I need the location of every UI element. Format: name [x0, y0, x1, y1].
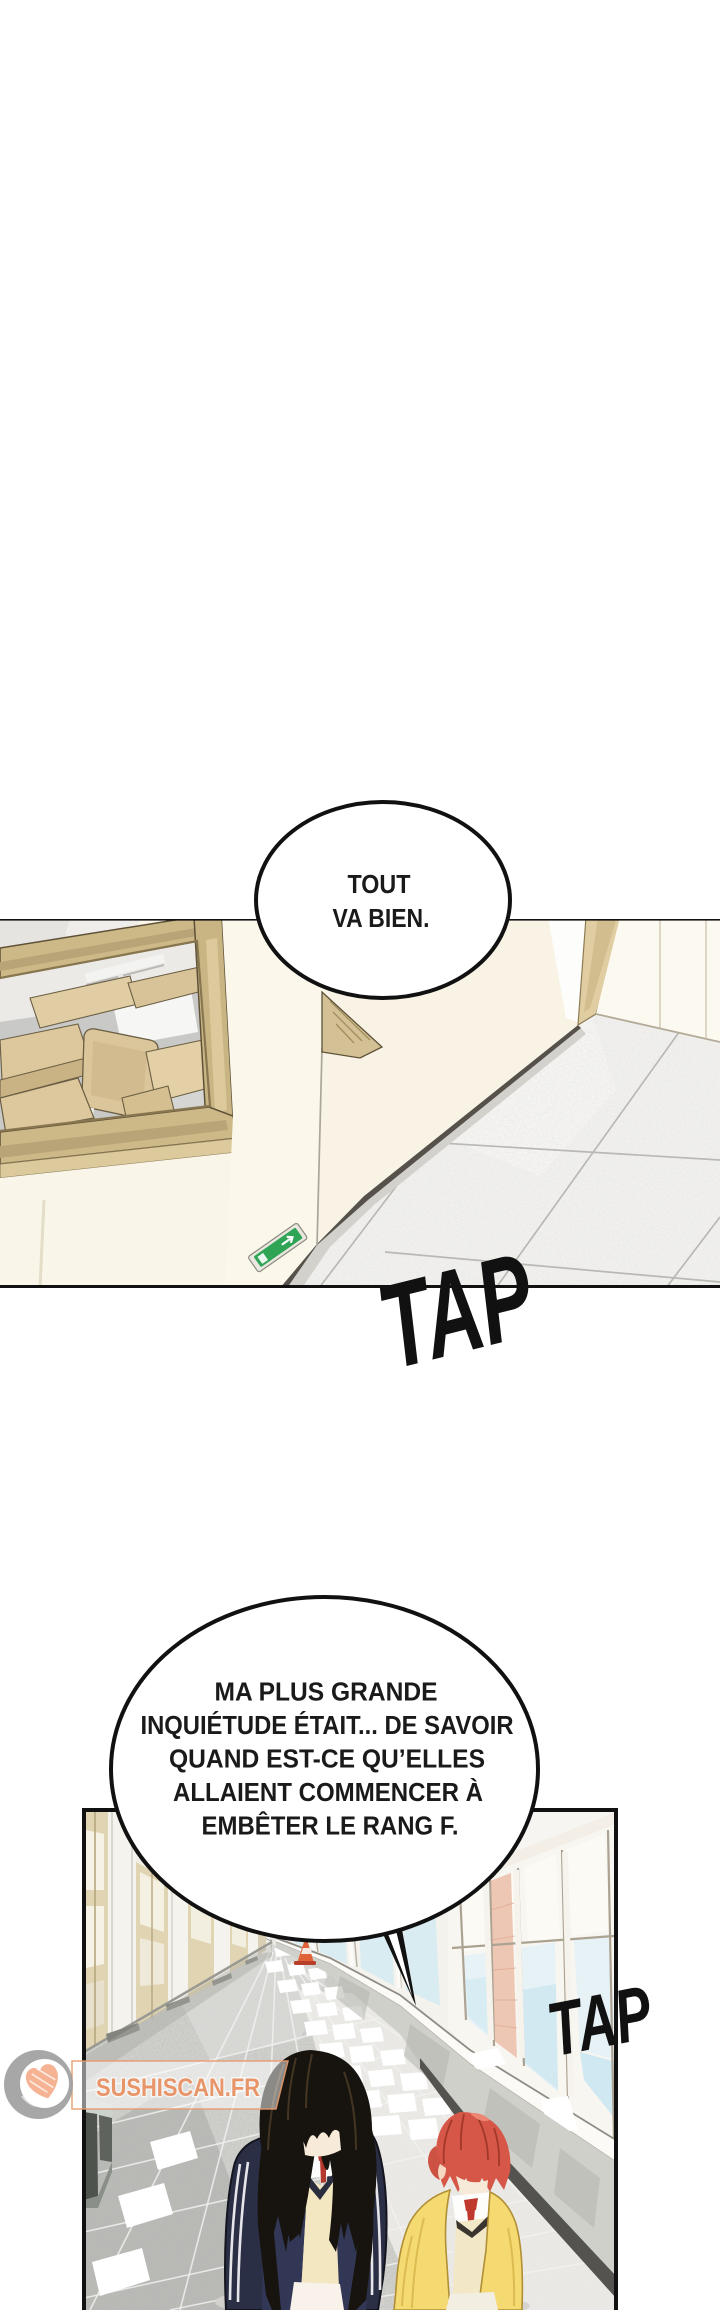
svg-text:TAP: TAP: [541, 1970, 659, 2073]
svg-text:MA PLUS GRANDE: MA PLUS GRANDE: [215, 1679, 438, 1707]
svg-text:VA BIEN.: VA BIEN.: [333, 903, 430, 933]
svg-text:INQUIÉTUDE ÉTAIT... DE SAVOIR: INQUIÉTUDE ÉTAIT... DE SAVOIR: [141, 1711, 514, 1740]
svg-text:ALLAIENT COMMENCER À: ALLAIENT COMMENCER À: [173, 1778, 483, 1807]
svg-text:TOUT: TOUT: [348, 869, 411, 899]
svg-text:SUSHISCAN.FR: SUSHISCAN.FR: [96, 2074, 260, 2102]
svg-text:QUAND EST-CE QU’ELLES: QUAND EST-CE QU’ELLES: [169, 1746, 485, 1774]
svg-text:EMBÊTER LE RANG F.: EMBÊTER LE RANG F.: [202, 1811, 459, 1841]
